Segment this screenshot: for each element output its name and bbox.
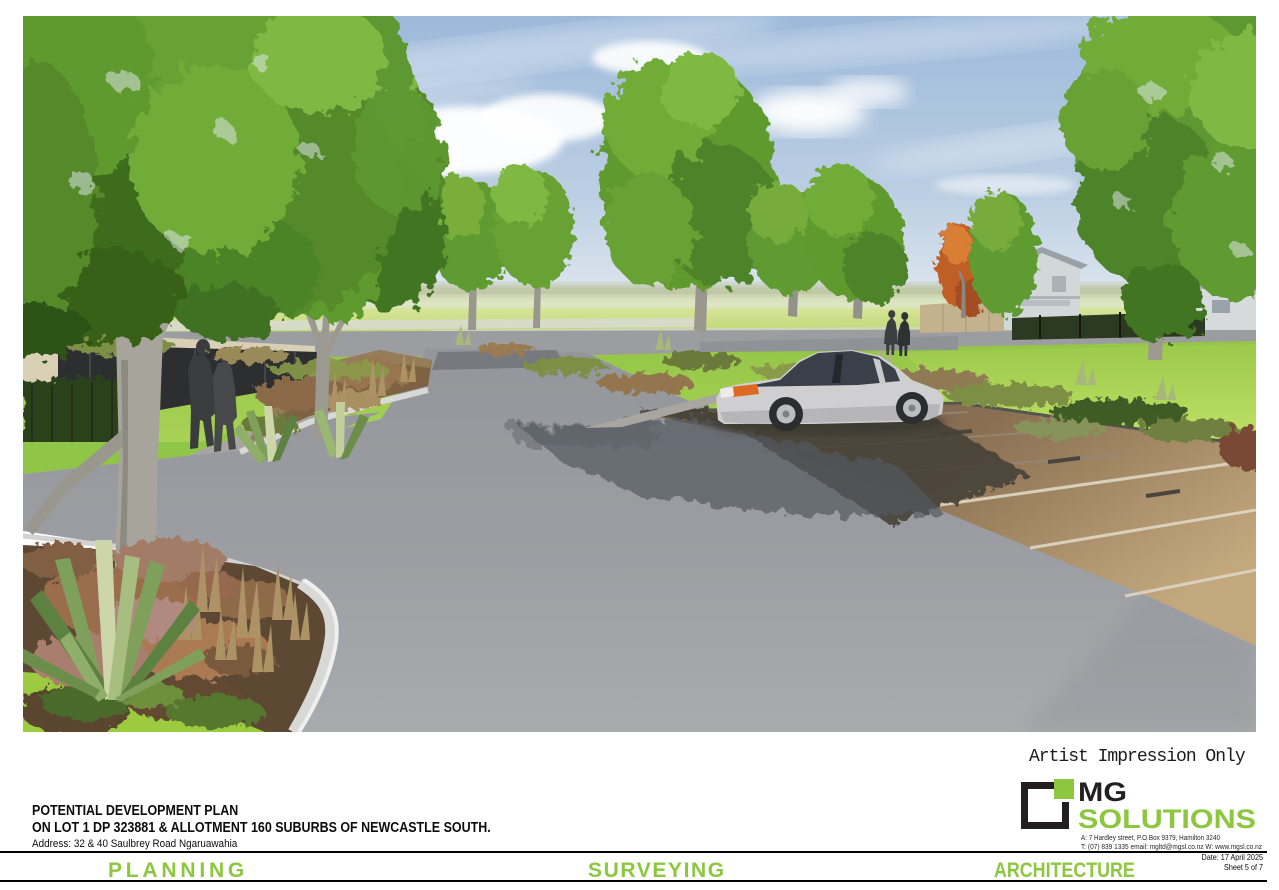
- svg-text:A: 7 Hardley street, P.O.Box 9: A: 7 Hardley street, P.O.Box 9379, Hamil…: [1081, 835, 1220, 842]
- svg-text:SOLUTIONS: SOLUTIONS: [1078, 804, 1256, 834]
- svg-text:T: (07) 839 1335 email: mglt: T: (07) 839 1335 email: mgltd@mgsl.co.nz…: [1081, 844, 1262, 851]
- svg-text:MG: MG: [1078, 777, 1127, 807]
